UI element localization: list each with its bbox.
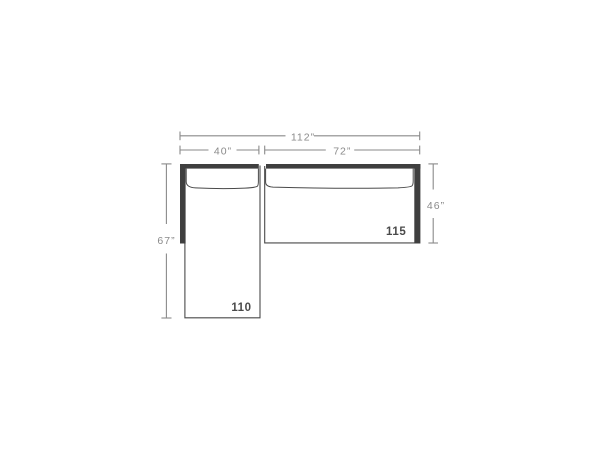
svg-text:67”: 67” [157, 235, 175, 247]
svg-text:40”: 40” [214, 146, 232, 158]
svg-text:72”: 72” [333, 146, 351, 158]
svg-text:112”: 112” [291, 132, 315, 144]
svg-text:115: 115 [386, 226, 406, 238]
svg-text:46”: 46” [427, 200, 445, 212]
svg-text:110: 110 [231, 302, 251, 314]
